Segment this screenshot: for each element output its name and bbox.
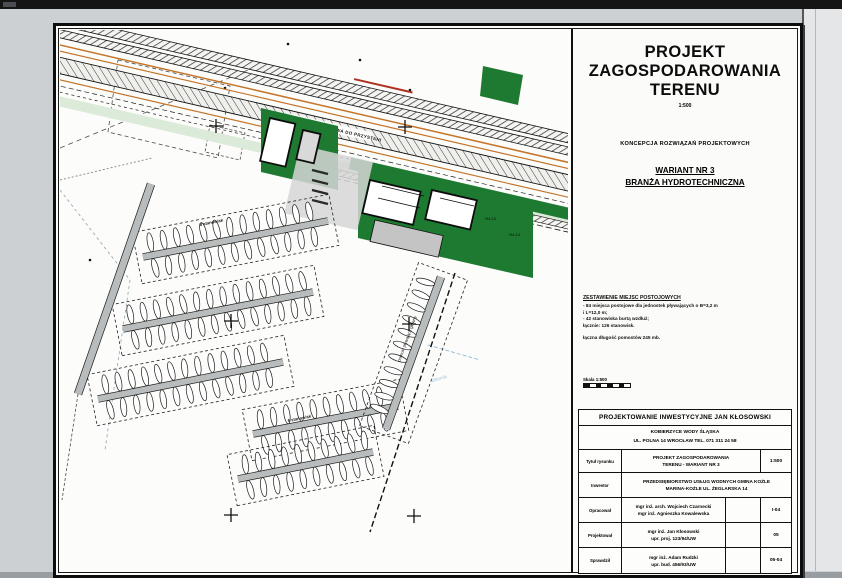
scrollbar-track[interactable] (802, 9, 842, 571)
boat-symbol (241, 454, 249, 474)
table-row-author: Opracował mgr inż. arch. Wojciech Czarne… (579, 498, 791, 523)
boat-symbol (181, 358, 189, 378)
boat-symbol (286, 472, 295, 492)
boat-symbol (310, 227, 319, 247)
boat-symbol (211, 379, 222, 399)
title-block: PROJEKT ZAGOSPODAROWANIA TERENU 1:500 KO… (571, 29, 797, 572)
boat-symbol (265, 368, 274, 388)
table-row-checker: Sprawdził mgr inż. Adam Rudzkiupr. bud. … (579, 548, 791, 573)
boat-symbol (233, 348, 243, 368)
boat-symbol (207, 353, 216, 373)
boat-symbol (192, 292, 200, 312)
boat-symbol (140, 366, 150, 386)
boat-symbol (411, 288, 431, 301)
boat-symbol (256, 409, 264, 429)
boat-symbol (185, 384, 195, 404)
boat-symbol (269, 235, 280, 255)
signature-cell (725, 498, 760, 522)
boat-symbol (265, 209, 274, 229)
boat-symbol (258, 278, 268, 298)
boat-symbol (139, 302, 149, 322)
boat-symbol (101, 374, 110, 394)
table-row-investor: Inwestor PRZEDSIĘBIORSTWO USŁUG WODNYCH … (579, 473, 791, 498)
drawing-sheet: DROGA DOJAZDOWA DO PRZYSTANI (53, 23, 803, 578)
boat-symbol (264, 304, 272, 324)
boat-symbol (219, 286, 228, 306)
boat-symbol (322, 396, 332, 416)
site-plan-map: DROGA DOJAZDOWA DO PRZYSTANI (60, 30, 568, 571)
boat-symbol (220, 351, 229, 371)
table-row-designer: Projektował mgr inż. Jan Kłosowskiupr. p… (579, 523, 791, 548)
boat-symbol (144, 327, 152, 347)
boat-symbol (165, 297, 175, 317)
survey-cross (224, 508, 238, 522)
boat-symbol (224, 376, 235, 396)
boat-symbol (249, 307, 260, 327)
boat-symbol (290, 299, 299, 319)
boat-symbol (105, 400, 116, 420)
boat-symbol (223, 312, 233, 332)
boat-symbol (166, 361, 177, 381)
scale-cell: 1:500 (760, 450, 791, 472)
parking-legend: ZESTAWIENIE MIEJSC POSTOJOWYCH - 84 miej… (583, 295, 789, 342)
boat-symbol (299, 469, 308, 489)
window-titlebar (0, 0, 842, 9)
concept-subtitle: KONCEPCJA ROZWIĄZAŃ PROJEKTOWYCH (573, 141, 797, 147)
boat-symbol (333, 436, 344, 456)
boat-symbol (159, 230, 169, 250)
variant-heading: WARIANT NR 3 BRANŻA HYDROTECHNICZNA (573, 165, 797, 188)
boat-symbol (306, 441, 316, 461)
survey-cross (407, 509, 421, 523)
boat-symbol (259, 477, 267, 497)
pier-pontoon (78, 184, 151, 394)
boat-symbol (348, 391, 358, 411)
water-label: zbiornik (431, 374, 448, 383)
boat-symbol (204, 248, 213, 268)
boat-symbol (272, 475, 281, 495)
sheet-inner-border: DROGA DOJAZDOWA DO PRZYSTANI (58, 28, 798, 573)
boat-symbol (126, 304, 136, 324)
boat-symbol (210, 314, 220, 334)
boat-symbol (245, 281, 255, 301)
panel-seam (815, 9, 816, 571)
boat-symbol (325, 464, 335, 484)
boat-symbol (335, 394, 345, 414)
boat-symbol (205, 289, 214, 309)
boat-symbol (172, 227, 182, 247)
boat-symbol (132, 395, 141, 415)
boat-symbol (379, 378, 399, 389)
company-address: KOBIERZYCE WODY ŚLĄSKA UL. POLNA 14 WROC… (579, 426, 791, 450)
boat-symbol (185, 225, 195, 245)
boat-symbol (259, 342, 269, 362)
boat-symbol (172, 386, 182, 406)
table-row-title: Tytuł rysunku PROJEKT ZAGOSPODAROWANIATE… (579, 450, 791, 473)
boat-symbol (152, 299, 162, 319)
legend-heading: ZESTAWIENIE MIEJSC POSTOJOWYCH (583, 295, 789, 301)
boat-symbol (243, 240, 253, 260)
boat-symbol (226, 217, 234, 237)
spot-elevation-1: +44.14 (508, 232, 521, 237)
boat-symbol (280, 446, 289, 466)
boat-symbol (157, 325, 166, 345)
boat-symbol (346, 433, 357, 453)
boat-symbol (406, 301, 426, 314)
boat-symbol (312, 466, 322, 486)
boat-symbol (284, 273, 294, 293)
boat-symbol (171, 322, 180, 342)
boat-symbol (184, 320, 193, 340)
boat-symbol (164, 255, 172, 275)
drawing-scale: 1:500 (573, 103, 797, 109)
boat-symbol (252, 371, 261, 391)
boat-symbol (383, 365, 403, 377)
boat-symbol (198, 381, 208, 401)
viewer-window: DROGA DOJAZDOWA DO PRZYSTANI (0, 0, 842, 578)
pier-pontoon (386, 277, 441, 429)
boat-symbol (360, 431, 368, 451)
boat-symbol (230, 242, 240, 262)
boat-symbol (297, 271, 308, 291)
scale-bar: Skala 1:500 (583, 377, 631, 388)
scale-bar-graphic (583, 383, 631, 388)
boat-symbol (245, 480, 256, 500)
boat-symbol (269, 407, 278, 427)
company-name: PROJEKTOWANIE INWESTYCYJNE JAN KŁOSOWSKI (579, 410, 791, 426)
spot-elevation-2: +44.10 (484, 216, 497, 221)
boat-symbol (239, 373, 247, 393)
boat-symbol (256, 237, 266, 257)
boat-symbol (194, 356, 203, 376)
boat-symbol (284, 232, 292, 252)
boat-symbol (236, 309, 246, 329)
boat-symbol (320, 438, 330, 458)
boat-symbol (351, 459, 362, 479)
boat-symbol (159, 389, 168, 409)
boat-symbol (146, 232, 155, 252)
boat-symbol (277, 302, 286, 322)
boat-symbol (119, 397, 127, 417)
boat-symbol (150, 258, 161, 278)
boat-symbol (271, 276, 281, 296)
boat-symbol (197, 317, 207, 337)
boat-symbol (246, 345, 256, 365)
boat-symbol (178, 294, 189, 314)
signature-cell (725, 548, 760, 573)
boat-symbol (191, 250, 200, 270)
boat-symbol (232, 284, 241, 304)
boat-symbol (293, 444, 303, 464)
boat-symbol (364, 456, 375, 476)
boat-symbol (297, 230, 306, 250)
boat-symbol (267, 449, 276, 469)
drawing-title: PROJEKT ZAGOSPODAROWANIA TERENU (573, 43, 797, 100)
boat-symbol (130, 330, 141, 350)
boat-symbol (177, 253, 186, 273)
boat-symbol (254, 452, 263, 472)
boat-symbol (153, 364, 164, 384)
boat-symbol (127, 369, 137, 389)
window-control[interactable] (3, 2, 16, 7)
boat-symbol (303, 296, 312, 316)
boat-symbol (239, 214, 248, 234)
titleblock-table: PROJEKTOWANIE INWESTYCYJNE JAN KŁOSOWSKI… (578, 409, 792, 574)
boat-symbol (217, 245, 227, 265)
signature-cell (725, 523, 760, 547)
boat-symbol (252, 212, 261, 232)
boat-symbol (338, 461, 348, 481)
boat-symbol (114, 372, 124, 392)
boat-symbol (146, 392, 155, 412)
boat-symbol (415, 276, 435, 287)
